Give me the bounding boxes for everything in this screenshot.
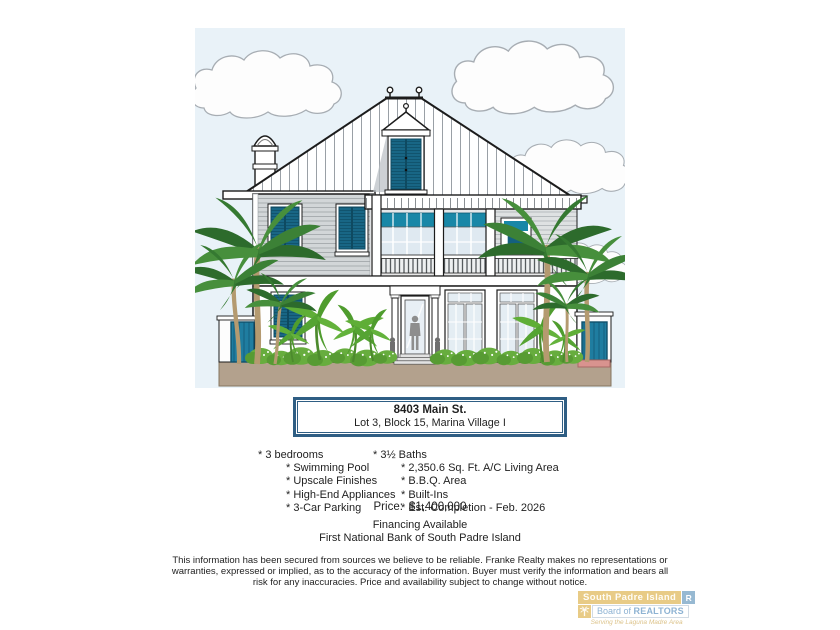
financing-line1: Financing Available bbox=[0, 519, 840, 532]
pink-step bbox=[578, 360, 610, 367]
porch-column bbox=[486, 209, 495, 276]
price-value: $1,400,000 bbox=[409, 501, 467, 513]
left-wing bbox=[253, 194, 375, 278]
porch-windows bbox=[379, 213, 486, 257]
house-rendering bbox=[195, 28, 625, 388]
entry-steps bbox=[394, 354, 436, 364]
address-line2: Lot 3, Block 15, Marina Village I bbox=[354, 417, 506, 430]
realtor-r-icon: R bbox=[682, 591, 695, 604]
logo-board-label: Board of REALTORS bbox=[592, 605, 689, 618]
shuttered-window bbox=[339, 207, 352, 249]
disclaimer: This information has been secured from s… bbox=[170, 556, 670, 588]
logo-board-strong: REALTORS bbox=[634, 606, 684, 616]
logo-region-name: South Padre Island bbox=[578, 591, 681, 604]
entry bbox=[390, 286, 440, 364]
feature-item: * 2,350.6 Sq. Ft. A/C Living Area bbox=[401, 462, 559, 475]
logo-board-prefix: Board of bbox=[597, 606, 631, 616]
porch-column bbox=[372, 195, 381, 276]
porch-column bbox=[435, 209, 444, 276]
dormer-window bbox=[391, 139, 406, 189]
ground bbox=[219, 362, 611, 386]
flyer-page: 8403 Main St. Lot 3, Block 15, Marina Vi… bbox=[0, 0, 840, 630]
price-label: Price: bbox=[374, 501, 403, 513]
realtor-board-logo: South Padre Island R Board of REALTORS S… bbox=[578, 591, 695, 626]
palm-tree-icon bbox=[578, 605, 591, 618]
price-line: Price:$1,400,000 bbox=[0, 501, 840, 513]
address-line1: 8403 Main St. bbox=[394, 404, 467, 417]
financing-line2: First National Bank of South Padre Islan… bbox=[0, 532, 840, 545]
financing-block: Financing Available First National Bank … bbox=[0, 519, 840, 545]
address-box: 8403 Main St. Lot 3, Block 15, Marina Vi… bbox=[293, 397, 567, 437]
logo-tagline: Serving the Laguna Madre Area bbox=[578, 619, 695, 626]
feature-item: * 3½ Baths bbox=[373, 449, 559, 462]
feature-item: * Built-Ins bbox=[401, 489, 559, 502]
feature-item: * B.B.Q. Area bbox=[401, 475, 559, 488]
